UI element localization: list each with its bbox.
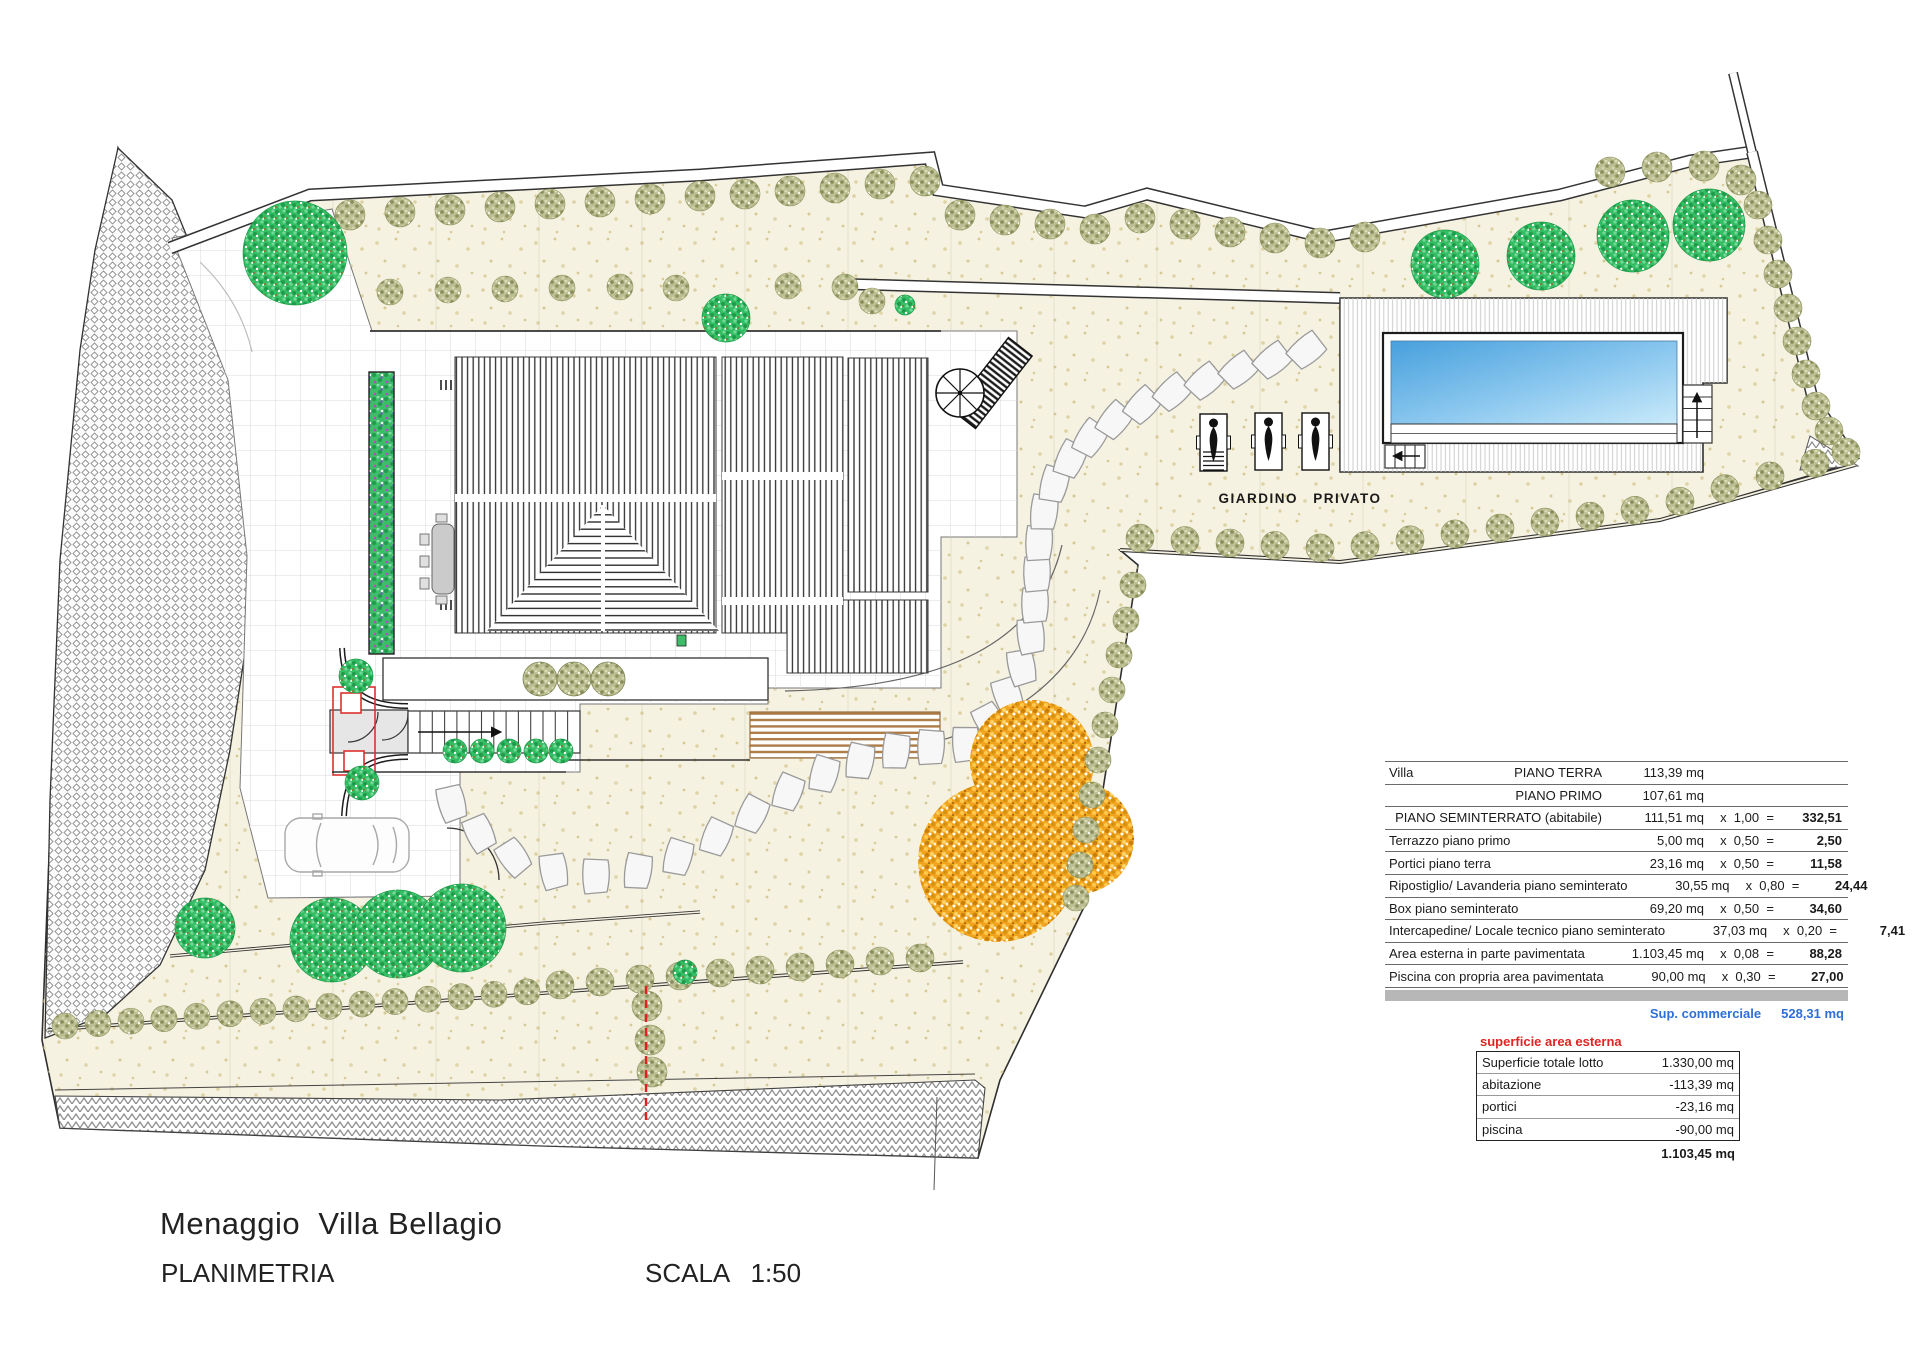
tree-olive [1099,677,1125,703]
stepping-stone [1022,588,1049,623]
tree-olive [663,275,689,301]
stepping-stone [881,733,911,771]
gate-pillar [341,693,361,713]
planter-strip [369,372,394,654]
tree-olive [52,1013,78,1039]
tree-olive [945,200,975,230]
table-row: Ripostiglio/ Lavanderia piano seminterat… [1385,875,1848,898]
tree-green [345,766,379,800]
tree-olive [1642,152,1672,182]
tree-olive [415,986,441,1012]
tree-olive [1261,531,1289,559]
tree-green [1673,189,1745,261]
table-divider-bar [1385,990,1848,1001]
tree-olive [485,192,515,222]
tree-olive [435,277,461,303]
garden-label: GIARDINO PRIVATO [1218,491,1381,506]
table-row: Area esterna in parte pavimentata 1.103,… [1385,943,1848,966]
tree-olive [85,1011,111,1037]
tree-olive [1113,607,1139,633]
tree-olive [706,959,734,987]
tree-olive [1170,209,1200,239]
tree-olive [1801,449,1829,477]
tree-olive [385,197,415,227]
sunbed-figure [1299,413,1333,470]
garden-sunbeds [1197,413,1333,471]
tree-olive [118,1008,144,1034]
tree-olive [535,189,565,219]
tree-olive [1764,260,1792,288]
tree-olive [1595,157,1625,187]
tree-olive [1576,502,1604,530]
pool-steps-right [1683,385,1712,443]
tree-olive [1832,438,1860,466]
tree-olive [1783,327,1811,355]
tree-olive [1215,217,1245,247]
tree-green [339,659,373,693]
tree-olive [1306,534,1334,562]
tree-olive [990,205,1020,235]
tree-green [673,960,697,984]
tree-olive [492,276,518,302]
tree-green [243,201,347,305]
tree-olive [1802,392,1830,420]
tree-olive [1067,852,1093,878]
tree-olive [1396,526,1424,554]
table-row: Terrazzo piano primo 5,00 mq x 0,50 = 2,… [1385,830,1848,853]
tree-olive [283,996,309,1022]
pool-steps-left [1385,445,1425,468]
tree-olive [1106,642,1132,668]
tree-olive [586,968,614,996]
tree-olive [859,288,885,314]
tree-olive [607,274,633,300]
tree-olive [448,984,474,1010]
tree-green [497,739,521,763]
tree-green [1411,230,1479,298]
tree-olive [546,971,574,999]
tree-olive [1125,203,1155,233]
tree-olive [1726,165,1756,195]
tree-olive [826,950,854,978]
tree-olive [832,274,858,300]
tree-olive [775,273,801,299]
tree-green [1597,200,1669,272]
table-row: Box piano seminterato 69,20 mq x 0,50 = … [1385,898,1848,921]
tree-olive [730,179,760,209]
tree-green [443,739,467,763]
tree-olive [775,176,805,206]
pool-area [1340,298,1727,472]
scale-label: SCALA 1:50 [645,1258,801,1289]
drawing-title: PLANIMETRIA [161,1258,334,1289]
table-row: PIANO PRIMO 107,61 mq [1385,785,1848,808]
tree-olive [585,187,615,217]
tree-olive [514,979,540,1005]
stepping-stone [1016,618,1046,656]
pool-water [1391,341,1677,424]
tree-olive [1756,462,1784,490]
tree-olive [626,965,654,993]
tree-olive [685,181,715,211]
tree-olive [635,184,665,214]
tree-olive [1120,572,1146,598]
tree-olive [1171,527,1199,555]
table-row: Superficie totale lotto 1.330,00 mq [1477,1052,1739,1074]
tree-olive [549,275,575,301]
tree-olive [377,279,403,305]
tree-olive [435,195,465,225]
tree-olive [1531,508,1559,536]
tree-olive [1126,524,1154,552]
table-row: Intercapedine/ Locale tecnico piano semi… [1385,920,1848,943]
tree-olive [1744,191,1772,219]
tree-olive [1350,222,1380,252]
villa-surfaces-table: Villa PIANO TERRA 113,39 mq PIANO PRIMO … [1385,761,1848,1020]
tree-olive [1351,532,1379,560]
entry-vestibule [330,710,408,753]
tree-green [549,739,573,763]
planter-bush [557,662,591,696]
tree-olive [906,944,934,972]
tree-olive [316,993,342,1019]
site-plan-sheet: GIARDINO PRIVATO Villa PIANO TERRA 113,3… [0,0,1920,1359]
tree-olive [382,989,408,1015]
tree-olive [1711,475,1739,503]
external-table-heading: superficie area esterna [1476,1035,1740,1048]
planter-bush [591,662,625,696]
tree-olive [1621,496,1649,524]
tree-olive [1035,209,1065,239]
tree-olive [250,998,276,1024]
tree-olive [746,956,774,984]
tree-green [470,739,494,763]
tree-olive [1092,712,1118,738]
tree-olive [1689,151,1719,181]
stepping-stone [917,730,945,766]
tree-olive [1079,782,1105,808]
tree-olive [1666,487,1694,515]
tree-olive [637,1057,667,1087]
roof-access-marker [677,635,686,646]
tree-olive [635,1025,665,1055]
parasol-umbrella [936,369,984,417]
sunbed-figure [1252,413,1286,470]
external-area-total: 1.103,45 mq [1476,1147,1740,1160]
stepping-stone [1025,526,1053,562]
stepping-stone [583,859,610,894]
table-row: portici -23,16 mq [1477,1096,1739,1118]
tree-olive [786,953,814,981]
tree-olive [151,1006,177,1032]
tree-green [175,898,235,958]
tree-olive [1441,520,1469,548]
parked-car [285,814,409,876]
table-row: Portici piano terra 23,16 mq x 0,50 = 11… [1385,852,1848,875]
tree-olive [1754,226,1782,254]
stepping-stone [1024,557,1051,592]
tree-olive [1080,214,1110,244]
tree-olive [1063,885,1089,911]
sunbed-figure [1197,414,1231,471]
tree-olive [349,991,375,1017]
tree-olive [1073,817,1099,843]
table-row: Villa PIANO TERRA 113,39 mq [1385,761,1848,785]
tree-olive [1216,529,1244,557]
tree-green [524,739,548,763]
tree-olive [1486,514,1514,542]
tree-green [1507,222,1575,290]
wood-deck [750,712,940,758]
tree-olive [1260,223,1290,253]
tree-olive [481,981,507,1007]
tree-green [702,294,750,342]
tree-green [418,884,506,972]
table-row: Piscina con propria area pavimentata 90,… [1385,965,1848,988]
table-row: abitazione -113,39 mq [1477,1074,1739,1096]
tree-olive [217,1001,243,1027]
tree-olive [1774,294,1802,322]
tree-olive [1305,228,1335,258]
table-row: piscina -90,00 mq [1477,1119,1739,1140]
tree-green [895,295,915,315]
villa-roof [441,357,928,673]
tree-olive [1085,747,1111,773]
commercial-surface-total: Sup. commerciale 528,31 mq [1385,1007,1848,1020]
tree-olive [866,947,894,975]
table-row: PIANO SEMINTERRATO (abitabile) 111,51 mq… [1385,807,1848,830]
tree-olive [910,166,940,196]
external-area-table: superficie area esterna Superficie total… [1476,1035,1740,1160]
tree-olive [1792,360,1820,388]
tree-olive [820,173,850,203]
tree-olive [865,169,895,199]
tree-olive [184,1003,210,1029]
project-title: Menaggio Villa Bellagio [160,1206,502,1242]
planter-bush [523,662,557,696]
